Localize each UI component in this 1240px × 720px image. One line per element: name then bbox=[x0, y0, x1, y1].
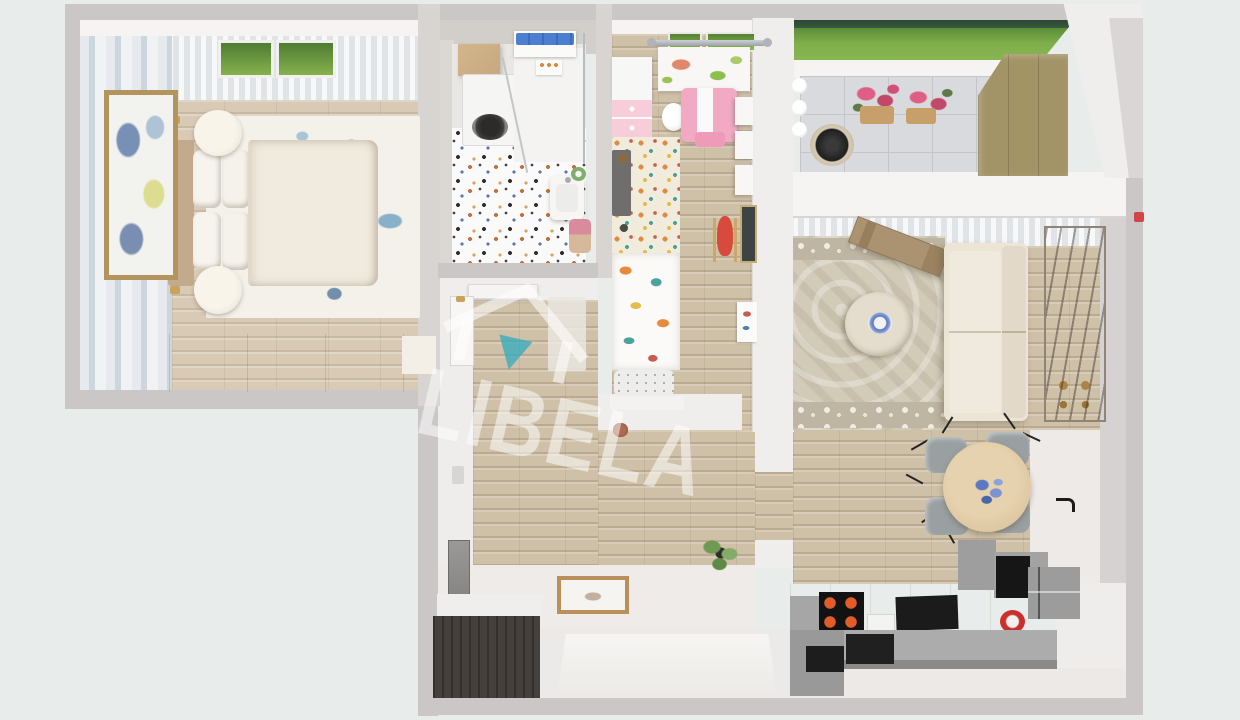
rocking-horse-rocker bbox=[713, 218, 716, 262]
sink-basin bbox=[556, 184, 578, 212]
wall-hall-living-lower bbox=[755, 540, 793, 568]
dinosaur-curtain bbox=[658, 47, 750, 91]
floorplan-render: LIBELA bbox=[0, 0, 1240, 720]
outer-wall-bottom bbox=[418, 698, 1143, 715]
living-rug-border bbox=[793, 402, 945, 428]
nightstand bbox=[194, 110, 242, 156]
rocking-horse-icon bbox=[713, 212, 737, 264]
balcony-grill bbox=[810, 124, 854, 166]
door-handle-gold-icon bbox=[456, 296, 465, 302]
kitchen-black-drawers bbox=[846, 634, 894, 664]
outer-wall-right bbox=[1126, 178, 1143, 715]
kids-dresser-drawers bbox=[612, 100, 652, 137]
kitchen-black-oven bbox=[996, 556, 1030, 598]
cooktop bbox=[819, 592, 864, 632]
wall-balcony-living bbox=[793, 172, 1126, 218]
coffee-table-plate bbox=[868, 312, 892, 334]
bathroom-basket bbox=[569, 219, 591, 253]
kids-wall-poster bbox=[737, 302, 757, 342]
sink-faucet-icon bbox=[565, 177, 571, 183]
kids-wall-shelf bbox=[735, 131, 753, 159]
sofa-backrest bbox=[1002, 246, 1026, 418]
shower-glass-panel bbox=[583, 33, 585, 163]
hall-runner-mat bbox=[548, 297, 586, 371]
kids-bed-duvet bbox=[612, 253, 680, 370]
bed-pillow bbox=[222, 150, 250, 208]
kids-toy-icon bbox=[618, 154, 628, 163]
kids-wall-shelf bbox=[735, 97, 753, 125]
kitchen-upper-cabinet bbox=[958, 540, 996, 590]
washing-machine-door bbox=[472, 114, 508, 140]
nightstand bbox=[194, 266, 242, 314]
entry-door-recess bbox=[557, 634, 777, 698]
bucket-icon bbox=[792, 122, 807, 138]
kids-bed-frame-end bbox=[610, 396, 684, 410]
bedroom-dresser bbox=[92, 334, 404, 392]
kids-dresser bbox=[612, 57, 652, 100]
kids-bed-pillow bbox=[614, 370, 674, 396]
bucket-icon bbox=[792, 78, 807, 94]
bedroom-window-pane bbox=[218, 40, 274, 78]
rocking-horse-rocker bbox=[734, 218, 737, 262]
small-toy-icon bbox=[613, 423, 628, 437]
bed-duvet bbox=[248, 140, 378, 286]
door-handle-icon bbox=[1056, 498, 1075, 512]
kitchen-black-counter-segment bbox=[895, 595, 958, 631]
bucket-icon bbox=[792, 100, 807, 116]
wall-lamp-icon bbox=[170, 286, 180, 294]
table-centerpiece bbox=[966, 471, 1012, 511]
switch-panel bbox=[536, 60, 562, 75]
wall-hall-living-upper bbox=[755, 430, 793, 472]
wall-bathroom-kids bbox=[596, 4, 612, 278]
kids-wall-shelf bbox=[735, 165, 753, 195]
red-wall-marker bbox=[1134, 212, 1144, 222]
kids-pink-chair bbox=[695, 132, 725, 147]
kids-toy-icon bbox=[620, 224, 628, 232]
curtain-rod-finial bbox=[647, 38, 656, 47]
curtain-rod-finial bbox=[763, 38, 772, 47]
sofa-seat bbox=[949, 251, 1001, 413]
bedroom-bottom-wall bbox=[65, 390, 438, 409]
kitchen-cabinet-handles bbox=[1028, 567, 1080, 619]
rocking-horse-body bbox=[717, 216, 733, 256]
blue-towels bbox=[516, 33, 574, 45]
bedroom-window-pane bbox=[276, 40, 336, 78]
bedroom-window-sill bbox=[80, 18, 418, 38]
bedroom-wall-art bbox=[104, 90, 178, 280]
light-switch bbox=[452, 466, 464, 484]
kitchen-lower-left-black bbox=[806, 646, 844, 672]
planter-box bbox=[906, 108, 936, 124]
entry-doormat-frame bbox=[557, 576, 629, 614]
living-wall-painting bbox=[1044, 226, 1106, 422]
bathroom-bottom-wall bbox=[438, 263, 598, 278]
kids-chalkboard bbox=[740, 205, 757, 263]
shoe-cabinet bbox=[433, 616, 540, 698]
bathroom-door-open bbox=[468, 284, 538, 299]
shoe-cabinet-top bbox=[437, 594, 543, 618]
planter-box bbox=[860, 106, 894, 124]
wall-kids-living bbox=[752, 18, 794, 432]
entry-plant bbox=[697, 531, 747, 577]
outer-wall-left bbox=[65, 4, 80, 408]
outer-wall-top bbox=[65, 4, 1105, 20]
bedroom-door bbox=[450, 296, 474, 366]
green-wreath-icon bbox=[571, 167, 586, 181]
bed-pillow bbox=[222, 212, 250, 270]
bed-pillow bbox=[193, 150, 221, 208]
bed-pillow bbox=[193, 212, 221, 270]
bedroom-cabinet-corner bbox=[402, 336, 436, 374]
bathroom-wood-shelf bbox=[458, 44, 500, 76]
sofa bbox=[944, 243, 1028, 421]
curtain-rod bbox=[652, 40, 766, 46]
balcony-buckets bbox=[792, 78, 808, 138]
